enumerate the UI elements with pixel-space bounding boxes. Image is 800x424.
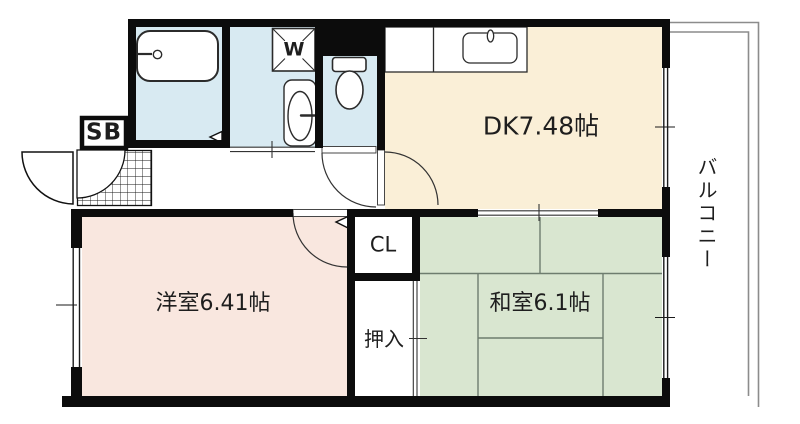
wall-closet-left <box>347 209 355 396</box>
wall-mid-band-c <box>598 209 670 217</box>
pipe-space-block <box>317 19 385 56</box>
wall-dk-left <box>377 19 385 150</box>
western-room-floor <box>82 217 347 396</box>
wall-closet-right <box>412 209 420 281</box>
shoe-box <box>82 118 126 148</box>
washing-machine-pan <box>273 29 316 72</box>
wall-bathroom-bottom <box>128 140 230 148</box>
dk-door-panel <box>378 150 385 205</box>
wall-closet-bottom <box>347 273 420 281</box>
bathtub-drain-icon <box>153 50 161 58</box>
wall-left-lower-a <box>71 209 82 248</box>
floorplan-drawing <box>0 0 800 424</box>
kitchen-counter <box>385 27 527 72</box>
toilet-door-arc <box>322 153 376 207</box>
kitchen-faucet-icon <box>487 30 493 42</box>
western-room-door-panel <box>293 210 348 217</box>
wall-mid-band-a <box>71 209 293 217</box>
entrance-door-outer-swing <box>22 152 73 204</box>
toilet-door-panel <box>322 147 376 154</box>
wall-top <box>128 19 670 27</box>
bathtub <box>137 31 218 81</box>
wash-basin <box>284 80 316 146</box>
wall-right-middle <box>662 187 670 257</box>
western-room-window <box>56 248 82 367</box>
wall-right-upper <box>662 19 670 68</box>
wall-bottom <box>62 396 670 407</box>
japanese-room-floor <box>420 217 662 396</box>
floorplan-canvas: SB W DK7.48帖 CL 押入 洋室6.41帖 和室6.1帖 バルコニー <box>0 0 800 424</box>
balcony-railing <box>670 23 759 408</box>
wall-left-upper <box>128 19 136 148</box>
wall-bath-wash-divider <box>222 27 230 140</box>
